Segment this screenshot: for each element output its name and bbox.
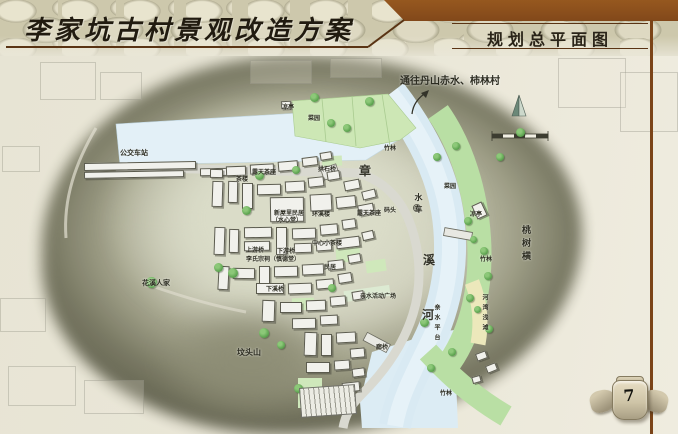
- map-label: 环溪楼: [312, 209, 330, 218]
- section-title: 规划总平面图: [452, 26, 648, 50]
- map-label: 竹林: [384, 143, 396, 152]
- header-brown-bar: [384, 0, 678, 21]
- map-label: 亲水活动广场: [360, 291, 396, 300]
- map-label: 坟头山: [237, 347, 261, 358]
- tree-icon: [464, 217, 472, 225]
- building: [242, 183, 253, 209]
- map-label: 河湾浅滩: [480, 294, 489, 334]
- building: [334, 359, 351, 370]
- building: [212, 181, 224, 207]
- tree-icon: [327, 119, 335, 127]
- tree-icon: [452, 142, 460, 150]
- building: [214, 227, 226, 255]
- building: [320, 223, 339, 236]
- tree-icon: [343, 124, 351, 132]
- hill-path-left: [66, 128, 96, 238]
- ghost-building: [620, 72, 678, 132]
- map-label: 中心小茶楼: [312, 238, 342, 247]
- tree-icon: [328, 284, 336, 292]
- river-name-char: 河: [422, 306, 434, 323]
- building: [302, 156, 319, 167]
- tree-icon: [427, 364, 435, 372]
- ghost-building: [250, 60, 312, 84]
- ghost-building: [330, 58, 382, 78]
- building: [308, 176, 325, 188]
- building: [288, 283, 312, 295]
- tree-icon: [433, 153, 441, 161]
- ghost-building: [40, 62, 96, 100]
- direction-note: 通往丹山赤水、柿林村: [400, 72, 500, 87]
- map-label: 民居: [324, 262, 336, 271]
- building: [330, 295, 347, 306]
- building: [335, 195, 356, 209]
- title-underline: [6, 46, 368, 48]
- building: [229, 229, 239, 253]
- building: [350, 347, 366, 358]
- map-label: 水车: [414, 193, 425, 217]
- building: [306, 300, 326, 312]
- header-diagonal-line: [366, 18, 406, 48]
- building: [244, 227, 272, 238]
- building: [352, 367, 366, 378]
- building: [257, 184, 281, 195]
- right-vertical-rule: [650, 20, 653, 434]
- tree-icon: [466, 294, 474, 302]
- building: [321, 334, 332, 356]
- map-label: 菜园: [444, 181, 456, 190]
- building: [302, 263, 325, 275]
- tree-icon: [310, 93, 319, 102]
- map-label: 菜园: [308, 113, 320, 122]
- tree-icon: [277, 341, 285, 349]
- building: [280, 302, 302, 313]
- building: [210, 169, 223, 178]
- tree-icon: [365, 97, 374, 106]
- map-label: 码头: [384, 205, 396, 214]
- map-label: 下溪桥: [266, 284, 284, 293]
- ghost-building: [2, 146, 40, 172]
- building: [320, 315, 338, 326]
- tree-icon: [259, 328, 269, 338]
- tree-icon: [448, 348, 456, 356]
- building: [274, 266, 298, 277]
- building: [285, 180, 306, 192]
- section-title-bottom-rule: [452, 48, 648, 49]
- map-label: 茶楼: [236, 174, 248, 183]
- tree-icon: [496, 153, 504, 161]
- building: [304, 332, 318, 356]
- ghost-building: [8, 366, 76, 406]
- shoal-strip: [472, 282, 480, 344]
- map-label: 花溪人家: [142, 278, 170, 288]
- tree-icon: [484, 272, 492, 280]
- map-label: 桃树横: [519, 225, 532, 264]
- map-label: 露天茶座: [357, 208, 381, 217]
- page-title: 李家坑古村景观改造方案: [24, 10, 354, 47]
- tree-icon: [470, 236, 477, 243]
- north-arrow-icon: [512, 95, 526, 116]
- map-label: 凉亭: [470, 209, 482, 218]
- building: [341, 218, 356, 230]
- map-label: 凉亭: [282, 102, 294, 111]
- page-number: 7: [611, 385, 646, 406]
- map-label: 竹林: [480, 254, 492, 263]
- map-label: 露天茶座: [252, 167, 276, 176]
- map-label: （水心堂）: [272, 215, 302, 224]
- map-label: 公交车站: [120, 148, 148, 158]
- building: [336, 331, 357, 343]
- building: [292, 318, 316, 329]
- map-label: 廊桥: [376, 342, 388, 351]
- river-name-char: 章: [359, 162, 371, 179]
- ghost-building: [0, 298, 46, 332]
- map-label: 上游桥: [246, 245, 264, 254]
- building: [228, 181, 238, 203]
- tree-icon: [516, 128, 525, 137]
- tree-icon: [242, 206, 251, 215]
- ghost-building: [84, 380, 144, 414]
- map-label: 竹林: [440, 388, 452, 397]
- map-label: 李氏宗祠（慎德堂）: [246, 254, 300, 263]
- tree-icon: [228, 268, 238, 278]
- building: [262, 300, 276, 322]
- ghost-building: [100, 72, 142, 100]
- building: [306, 362, 330, 373]
- parking-lot: [299, 384, 357, 418]
- tree-icon: [292, 166, 300, 174]
- section-title-top-rule: [452, 23, 648, 24]
- river-name-char: 溪: [423, 251, 435, 268]
- map-canvas: 公交车站凉亭菜园竹林菜园茶楼露天茶座拱石桥水车码头露天茶座环溪楼新屋里民居（水心…: [0, 0, 678, 434]
- village-path: [152, 286, 246, 312]
- map-label: 拱石桥: [318, 164, 336, 173]
- tree-icon: [214, 263, 223, 272]
- building: [294, 243, 312, 254]
- ghost-building: [558, 58, 626, 108]
- slide: 公交车站凉亭菜园竹林菜园茶楼露天茶座拱石桥水车码头露天茶座环溪楼新屋里民居（水心…: [0, 0, 678, 434]
- page-number-ornament: 7: [590, 374, 668, 428]
